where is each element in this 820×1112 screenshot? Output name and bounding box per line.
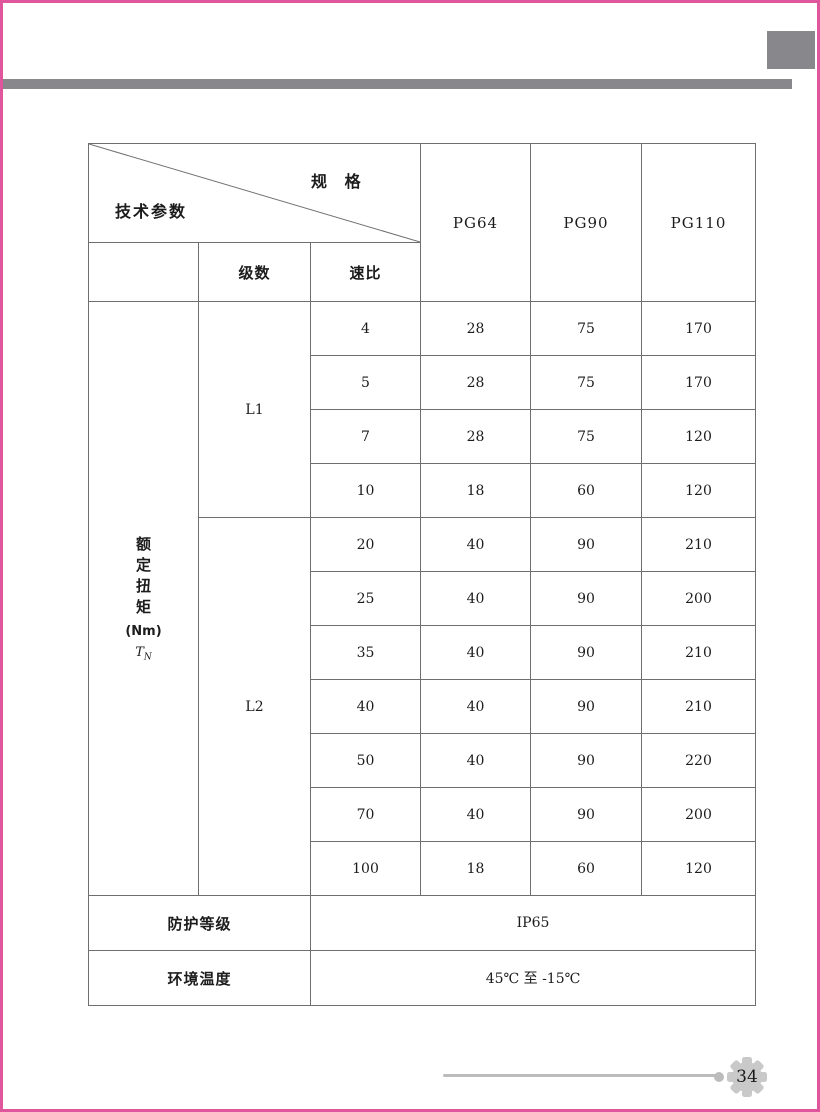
- pg64-cell: 40: [421, 734, 531, 788]
- pg90-cell: 90: [531, 572, 642, 626]
- column-header-ratio: 速比: [311, 243, 421, 302]
- column-header-pg64: PG64: [421, 144, 531, 302]
- ratio-cell: 5: [311, 356, 421, 410]
- torque-symbol-label: TN: [135, 645, 152, 663]
- footer-rule: [443, 1074, 719, 1077]
- pg90-cell: 60: [531, 464, 642, 518]
- pg90-cell: 90: [531, 518, 642, 572]
- pg110-cell: 120: [642, 464, 756, 518]
- ratio-cell: 35: [311, 626, 421, 680]
- table-row: 防护等级 IP65: [89, 896, 756, 951]
- pg90-cell: 60: [531, 842, 642, 896]
- ratio-cell: 7: [311, 410, 421, 464]
- pg64-cell: 18: [421, 842, 531, 896]
- header-corner-cell: 规 格 技术参数: [89, 144, 421, 243]
- pg110-cell: 220: [642, 734, 756, 788]
- pg64-cell: 28: [421, 356, 531, 410]
- ratio-cell: 4: [311, 302, 421, 356]
- diagonal-divider-line: [89, 144, 420, 242]
- pg110-cell: 120: [642, 842, 756, 896]
- table-row: 额定扭矩 (Nm) TN L1 4 28 75 170: [89, 302, 756, 356]
- ratio-cell: 70: [311, 788, 421, 842]
- pg64-cell: 40: [421, 572, 531, 626]
- ambient-temperature-value: 45℃ 至 -15℃: [311, 951, 756, 1006]
- column-header-stage: 级数: [199, 243, 311, 302]
- pg90-cell: 75: [531, 302, 642, 356]
- pg110-cell: 200: [642, 572, 756, 626]
- pg64-cell: 28: [421, 410, 531, 464]
- protection-class-value: IP65: [311, 896, 756, 951]
- pg64-cell: 28: [421, 302, 531, 356]
- pg110-cell: 210: [642, 518, 756, 572]
- protection-class-label: 防护等级: [89, 896, 311, 951]
- ambient-temperature-label: 环境温度: [89, 951, 311, 1006]
- pg64-cell: 40: [421, 680, 531, 734]
- header-empty-cell: [89, 243, 199, 302]
- pg64-cell: 18: [421, 464, 531, 518]
- pg90-cell: 90: [531, 680, 642, 734]
- header-spec-label: 规 格: [311, 168, 367, 192]
- pg90-cell: 90: [531, 734, 642, 788]
- ratio-cell: 10: [311, 464, 421, 518]
- page-number: 34: [725, 1055, 769, 1099]
- pg64-cell: 40: [421, 518, 531, 572]
- pg90-cell: 90: [531, 626, 642, 680]
- pg110-cell: 210: [642, 680, 756, 734]
- ratio-cell: 100: [311, 842, 421, 896]
- pg90-cell: 90: [531, 788, 642, 842]
- torque-label-cell: 额定扭矩 (Nm) TN: [89, 302, 199, 896]
- ratio-cell: 50: [311, 734, 421, 788]
- pg110-cell: 170: [642, 356, 756, 410]
- column-header-pg90: PG90: [531, 144, 642, 302]
- stage-cell-l2: L2: [199, 518, 311, 896]
- pg64-cell: 40: [421, 788, 531, 842]
- pg110-cell: 170: [642, 302, 756, 356]
- ratio-cell: 25: [311, 572, 421, 626]
- torque-unit-label: (Nm): [125, 624, 161, 639]
- column-header-pg110: PG110: [642, 144, 756, 302]
- header-parameters-label: 技术参数: [115, 198, 187, 222]
- corner-decor-block: [767, 31, 815, 69]
- pg90-cell: 75: [531, 410, 642, 464]
- pg90-cell: 75: [531, 356, 642, 410]
- pg110-cell: 210: [642, 626, 756, 680]
- ratio-cell: 40: [311, 680, 421, 734]
- pg110-cell: 200: [642, 788, 756, 842]
- pg64-cell: 40: [421, 626, 531, 680]
- gear-icon: 34: [725, 1055, 769, 1099]
- pg110-cell: 120: [642, 410, 756, 464]
- ratio-cell: 20: [311, 518, 421, 572]
- torque-vertical-label: 额定扭矩: [136, 534, 151, 618]
- document-page: 规 格 技术参数 PG64 PG90 PG110 级数 速比 额定扭矩 (Nm): [0, 0, 820, 1112]
- top-decor-bar: [3, 79, 792, 89]
- stage-cell-l1: L1: [199, 302, 311, 518]
- table-row: 环境温度 45℃ 至 -15℃: [89, 951, 756, 1006]
- footer-dot: [714, 1072, 724, 1082]
- spec-table: 规 格 技术参数 PG64 PG90 PG110 级数 速比 额定扭矩 (Nm): [88, 143, 756, 1006]
